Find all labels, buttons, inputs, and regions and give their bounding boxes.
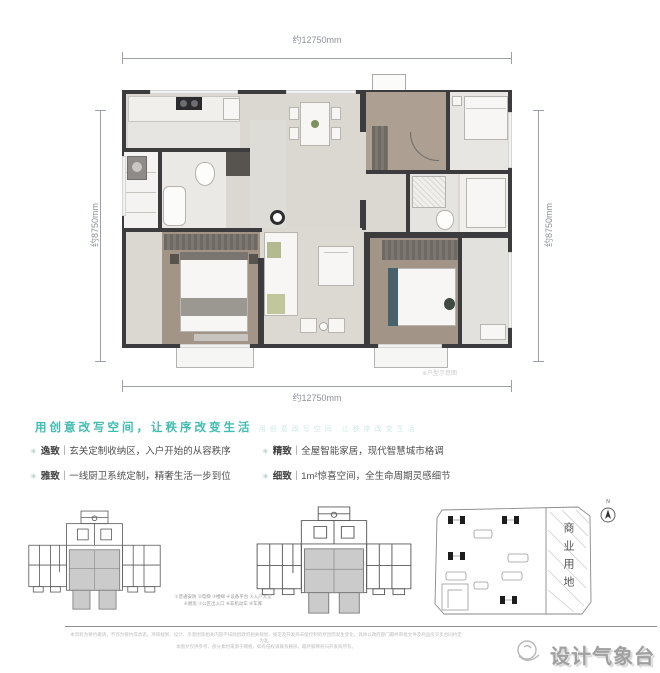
lounge-chair-2 (328, 318, 345, 333)
feature-item-1: ✳逸致｜玄关定制收纳区，入户开始的从容秩序 (30, 443, 231, 457)
diamond-icon: ✳ (262, 447, 269, 456)
dim-left-line (100, 110, 101, 362)
legend-line-1: ①普通安防 ②电梯 ③楼梯 ④设备平台 ⑤入户大堂 (148, 593, 298, 600)
disclaimer-line-2: 本图文仅供参考，部分素材来源于网络，如有侵权请联系删除，最终解释权归开发商所有。 (70, 644, 462, 650)
feature-item-4: ✳细致｜1m²惊喜空间，全生命周期灵感细节 (262, 468, 451, 482)
bedroom2-bed (388, 268, 456, 326)
bedroom1-bed (180, 252, 248, 332)
fridge (223, 98, 240, 120)
headline-echo: 用创意改写空间 让秩序改变生活 (259, 426, 419, 433)
bedroom1-headboard (180, 252, 248, 260)
brand-logo (512, 637, 546, 665)
dim-right-line (538, 110, 539, 362)
feature-tag: 细致 (273, 471, 292, 482)
dim-top-line (122, 58, 512, 59)
feature-item-2: ✳雅致｜一线厨卫系统定制，精奢生活一步到位 (30, 468, 231, 482)
bedroom1-bench (194, 334, 248, 341)
balcony-right (374, 348, 448, 368)
floor-plan (118, 72, 518, 374)
dim-bottom-line (122, 386, 512, 387)
cooktop-burner-right (191, 100, 198, 107)
dim-bottom-tick-left (122, 380, 123, 392)
dining-chair-2 (289, 127, 299, 140)
study-wardrobe (372, 126, 388, 170)
feature-sep: ｜ (60, 471, 70, 482)
coffee-table-inner (324, 252, 348, 253)
bedroom1-nightstand-left (170, 254, 179, 264)
footer-divider (65, 626, 657, 627)
brand-name: 设计气象台 (550, 640, 655, 669)
bath1-cabinet (226, 152, 250, 176)
feature-sep: ｜ (292, 471, 302, 482)
poster-canvas: 约12750mm 约12750mm 约8750mm 约8750mm (0, 0, 660, 673)
side-table-round (319, 322, 328, 331)
lounge-chair-1 (300, 318, 317, 333)
feature-desc: 玄关定制收纳区，入户开始的从容秩序 (69, 446, 231, 457)
bath1-toilet (195, 162, 215, 186)
window-dining-top (286, 90, 356, 94)
right-small-room-bed (466, 178, 506, 228)
window-kitchen-top (150, 90, 238, 94)
feature-tag: 雅致 (41, 471, 60, 482)
bedroom2-wardrobe (382, 240, 458, 260)
kitchen-floor (128, 122, 240, 148)
compass: N (598, 499, 618, 525)
feature-sep: ｜ (60, 446, 70, 457)
dim-left-tick-top (95, 110, 106, 111)
footer-disclaimer: 本资料为要约邀请，不作为要约或承诺。项目规划、设计、示意图等相关内容不排除因政府… (70, 632, 462, 650)
feature-desc: 全屋智能家居，现代智慧城市格调 (301, 446, 444, 457)
bedroom1-nightstand-right (249, 254, 258, 264)
dim-right-label: 约8750mm (542, 193, 554, 257)
dim-right-tick-top (533, 110, 544, 111)
headline: 用创意改写空间，让秩序改变生活 用创意改写空间 让秩序改变生活 (35, 419, 419, 435)
bath1-tub (163, 186, 186, 226)
window-right-lower (508, 252, 512, 328)
bedroom1-wardrobe (164, 234, 258, 250)
bedroom2-headboard (388, 268, 398, 326)
dim-right-tick-bottom (533, 361, 544, 362)
disclaimer-line-1: 本资料为要约邀请，不作为要约或承诺。项目规划、设计、示意图等相关内容不排除因政府… (70, 632, 462, 644)
keyplan-building-1-svg (27, 505, 162, 617)
master-bath-fixture (480, 324, 506, 340)
sofa-cushion-2 (267, 294, 285, 314)
feature-desc: 1m²惊喜空间，全生命周期灵感细节 (301, 471, 450, 482)
bedroom3-bed (464, 96, 508, 140)
dining-chair-3 (331, 107, 341, 120)
diamond-icon: ✳ (30, 472, 37, 481)
diamond-icon: ✳ (262, 472, 269, 481)
compass-icon (598, 505, 618, 525)
dim-top-tick-right (511, 52, 512, 64)
dim-left-tick-bottom (95, 361, 106, 362)
feature-tag: 逸致 (41, 446, 60, 457)
plan-note: ※户型示意图 (422, 368, 457, 377)
site-commercial-label: 商业用地 (560, 522, 576, 602)
dim-bottom-tick-right (511, 380, 512, 392)
dim-left-label: 约8750mm (88, 193, 100, 257)
bedroom3-side-table (452, 96, 462, 106)
bath2-toilet (436, 210, 454, 230)
dining-plant (311, 120, 319, 128)
keyplan-legend: ①普通安防 ②电梯 ③楼梯 ④设备平台 ⑤入户大堂 ⑥厨房 ⑦公区出入口 ⑧非机… (148, 593, 298, 607)
dim-top-label: 约12750mm (267, 33, 367, 46)
dining-chair-4 (331, 127, 341, 140)
dining-chair-1 (289, 107, 299, 120)
bedroom1-bed-runner (181, 298, 247, 316)
closet-shelf-line3 (126, 212, 156, 213)
wall-dining-east-lower (360, 200, 366, 230)
closet-shelf-line2 (126, 192, 156, 193)
cloud-logo-icon (512, 637, 546, 665)
feature-sep: ｜ (292, 446, 302, 457)
floor-lamp (270, 210, 285, 225)
window-right-upper (508, 112, 512, 168)
dim-bottom-label: 约12750mm (267, 391, 367, 404)
cooktop-burner-left (180, 100, 187, 107)
feature-tag: 精致 (273, 446, 292, 457)
diamond-icon: ✳ (30, 447, 37, 456)
washer-door (132, 162, 142, 172)
legend-line-2: ⑥厨房 ⑦公区出入口 ⑧非机动车 ⑨车库 (148, 600, 298, 607)
sofa-cushion-1 (267, 242, 281, 258)
bedroom2-plant (444, 298, 455, 310)
balcony-left (176, 348, 254, 368)
bedroom3-pillow-line (466, 108, 506, 109)
dim-top-tick-left (122, 52, 123, 64)
keyplan-building-1 (27, 505, 162, 617)
bath2-shower (412, 176, 446, 208)
window-left (122, 156, 126, 216)
feature-item-3: ✳精致｜全屋智能家居，现代智慧城市格调 (262, 443, 444, 457)
feature-desc: 一线厨卫系统定制，精奢生活一步到位 (69, 471, 231, 482)
headline-text: 用创意改写空间，让秩序改变生活 (35, 422, 253, 434)
